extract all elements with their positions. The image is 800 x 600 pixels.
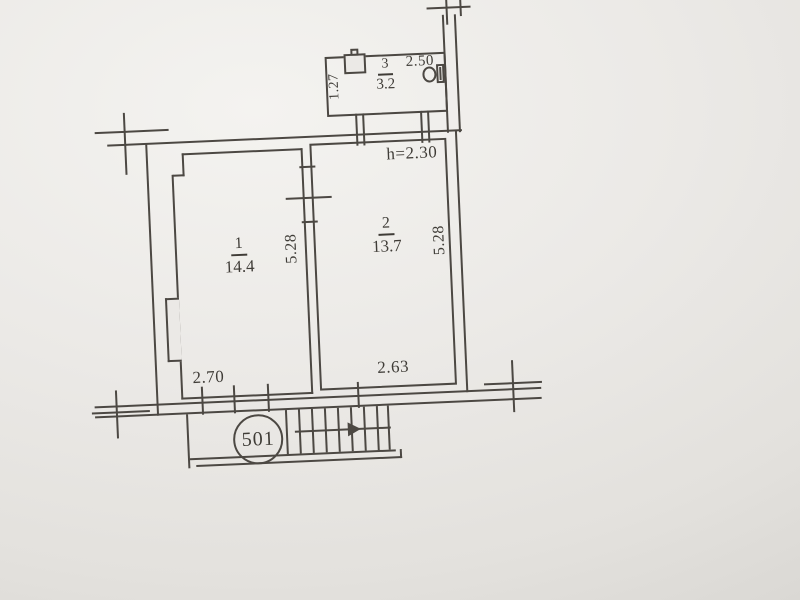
sink-tap-icon bbox=[350, 49, 358, 56]
room2-label-stack: 2 13.7 bbox=[371, 215, 402, 256]
wall-break-stroke-top-1 bbox=[445, 0, 448, 25]
shaft-wall-top bbox=[442, 14, 461, 132]
room1-width-dim: 2.70 bbox=[192, 367, 225, 388]
wall-break-tick-top bbox=[427, 6, 471, 10]
stairs-direction-arrow-icon bbox=[348, 422, 362, 437]
room1-area-label: 14.4 bbox=[224, 257, 255, 276]
room2-width-dim: 2.63 bbox=[377, 357, 410, 378]
room3-number-label: 3 bbox=[377, 57, 393, 75]
room1-depth-dim: 5.28 bbox=[282, 233, 301, 264]
room1-wall-top bbox=[182, 148, 303, 155]
room3-area-label: 3.2 bbox=[376, 77, 395, 94]
apartment-number-label: 501 bbox=[241, 427, 275, 451]
wall-break-stroke-bottom-right bbox=[511, 360, 515, 412]
stair-tread bbox=[285, 410, 289, 454]
room1-number-label: 1 bbox=[230, 236, 247, 256]
bathroom-connector-wall-left bbox=[355, 113, 365, 145]
bathroom-depth-dim: 1.27 bbox=[326, 73, 343, 100]
room2-depth-dim: 5.28 bbox=[430, 225, 449, 256]
room2-walls bbox=[309, 138, 457, 391]
wall-corridor-top bbox=[95, 387, 542, 408]
sink-icon bbox=[343, 53, 366, 74]
wall-corridor-bottom bbox=[95, 397, 542, 418]
room1-corner-step-vertical bbox=[182, 153, 185, 176]
room1-wall-niche bbox=[165, 298, 182, 363]
bathroom-width-dim: 2.50 bbox=[405, 53, 434, 71]
wall-break-tick-top-left bbox=[95, 129, 169, 134]
room2-number-label: 2 bbox=[378, 215, 395, 235]
room1-walls bbox=[172, 169, 314, 400]
floor-plan-drawing: 501 3 3.2 2.50 1.27 h=2.30 1 14.4 5.28 2… bbox=[0, 0, 800, 600]
wall-left-outer bbox=[145, 144, 159, 416]
wall-right-outer bbox=[455, 130, 468, 392]
room3-label-stack: 3 3.2 bbox=[375, 55, 395, 93]
room2-area-label: 13.7 bbox=[372, 237, 403, 256]
room1-label-stack: 1 14.4 bbox=[223, 235, 254, 276]
bathroom-connector-wall-right bbox=[420, 111, 430, 143]
stair-stringer-cap bbox=[400, 449, 402, 458]
ceiling-height-note: h=2.30 bbox=[386, 142, 438, 164]
wall-break-stroke-top-2 bbox=[459, 0, 462, 16]
scanned-floor-plan-page: 501 3 3.2 2.50 1.27 h=2.30 1 14.4 5.28 2… bbox=[0, 0, 800, 600]
